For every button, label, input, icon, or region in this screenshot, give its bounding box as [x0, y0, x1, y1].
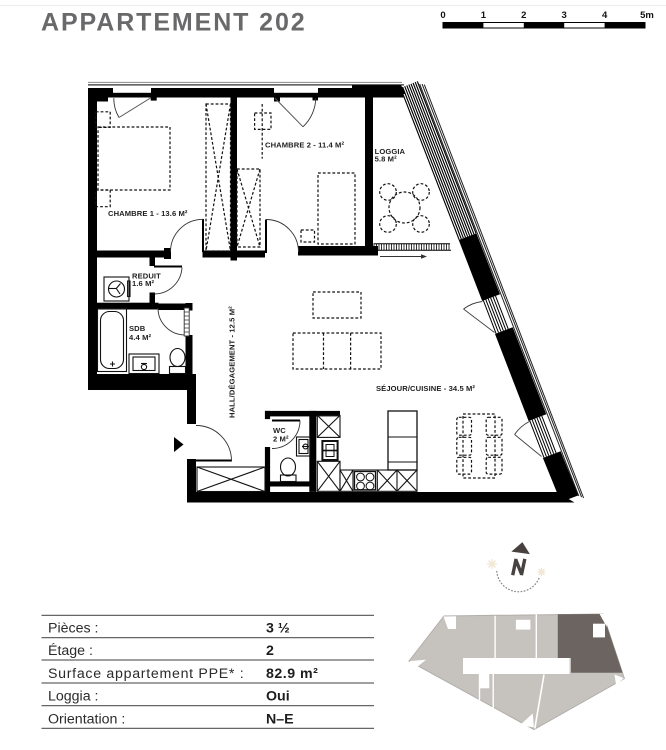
svg-text:HALL/DÉGAGEMENT - 12.5 M²: HALL/DÉGAGEMENT - 12.5 M²: [228, 306, 237, 418]
svg-text:Loggia :: Loggia :: [48, 689, 99, 705]
svg-text:4: 4: [602, 10, 608, 21]
svg-text:0: 0: [440, 10, 445, 21]
svg-text:Surface appartement PPE* :: Surface appartement PPE* :: [48, 666, 244, 682]
svg-text:N–E: N–E: [266, 712, 294, 728]
svg-text:Étage :: Étage :: [48, 642, 93, 659]
svg-text:SÉJOUR/CUISINE - 34.5 M²: SÉJOUR/CUISINE - 34.5 M²: [376, 384, 475, 393]
svg-text:2 M²: 2 M²: [273, 435, 289, 444]
svg-text:3 ½: 3 ½: [266, 621, 290, 637]
svg-text:SDB: SDB: [129, 324, 146, 333]
svg-text:4.4 M²: 4.4 M²: [129, 333, 151, 342]
svg-text:82.9 m²: 82.9 m²: [266, 666, 318, 682]
svg-text:Oui: Oui: [266, 689, 290, 705]
svg-text:5.8 M²: 5.8 M²: [375, 155, 397, 164]
svg-text:APPARTEMENT 202: APPARTEMENT 202: [41, 9, 307, 37]
svg-text:Orientation :: Orientation :: [48, 712, 125, 728]
svg-text:5m: 5m: [640, 10, 654, 21]
svg-text:CHAMBRE 2 - 11.4 M²: CHAMBRE 2 - 11.4 M²: [265, 141, 344, 150]
svg-text:3: 3: [562, 10, 567, 21]
svg-text:2: 2: [521, 10, 526, 21]
svg-text:1: 1: [481, 10, 487, 21]
svg-text:2: 2: [266, 643, 274, 659]
svg-text:Pièces :: Pièces :: [48, 621, 98, 637]
svg-text:1.6 M²: 1.6 M²: [132, 279, 154, 288]
svg-text:CHAMBRE 1 - 13.6 M²: CHAMBRE 1 - 13.6 M²: [108, 209, 188, 218]
